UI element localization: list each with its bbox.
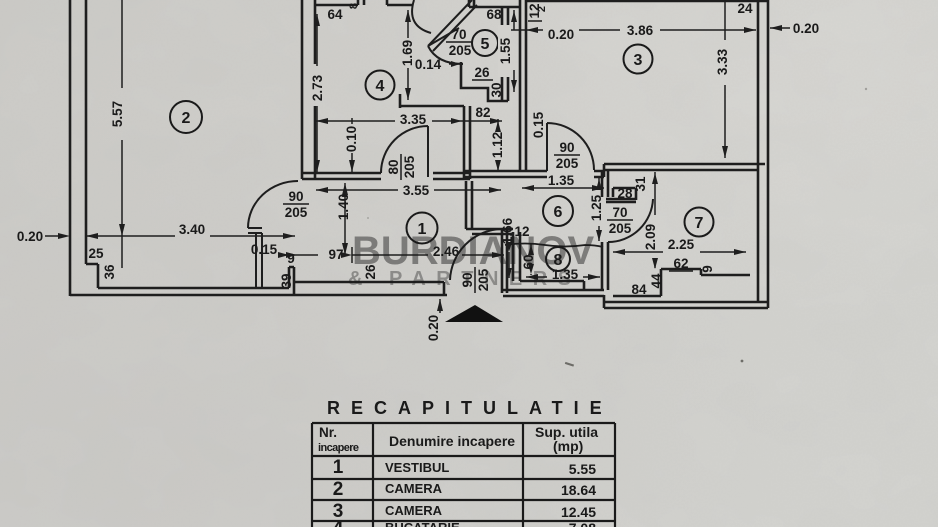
svg-text:3.55: 3.55 <box>403 183 430 198</box>
svg-text:(mp): (mp) <box>553 438 583 454</box>
svg-text:0.20: 0.20 <box>17 229 43 244</box>
svg-text:28: 28 <box>617 186 633 201</box>
svg-text:VESTIBUL: VESTIBUL <box>385 460 449 475</box>
svg-text:2: 2 <box>536 6 548 12</box>
svg-text:0.15: 0.15 <box>251 242 278 257</box>
svg-text:1: 1 <box>333 457 344 478</box>
svg-text:205: 205 <box>556 156 579 171</box>
svg-text:6: 6 <box>554 204 563 221</box>
svg-text:9: 9 <box>287 251 295 266</box>
svg-text:36: 36 <box>102 264 117 280</box>
svg-text:90: 90 <box>288 189 303 204</box>
svg-text:97: 97 <box>328 247 343 262</box>
svg-text:30: 30 <box>489 82 504 97</box>
svg-text:12.45: 12.45 <box>561 504 596 520</box>
svg-text:205: 205 <box>609 221 632 236</box>
svg-text:205: 205 <box>285 205 308 220</box>
svg-text:0.20: 0.20 <box>426 315 441 341</box>
svg-text:Denumire incapere: Denumire incapere <box>389 433 515 449</box>
svg-text:BURDIANOV: BURDIANOV <box>352 229 595 273</box>
svg-text:7.08: 7.08 <box>569 520 596 527</box>
svg-text:80: 80 <box>386 159 401 174</box>
svg-text:31: 31 <box>633 176 648 192</box>
svg-text:39: 39 <box>279 273 294 288</box>
svg-text:RECAPITULATIE: RECAPITULATIE <box>327 398 613 418</box>
svg-text:5: 5 <box>481 36 490 53</box>
svg-text:3: 3 <box>634 52 643 69</box>
svg-text:82: 82 <box>475 105 490 120</box>
svg-text:1.55: 1.55 <box>498 37 513 64</box>
svg-text:3.86: 3.86 <box>627 23 654 38</box>
svg-text:70: 70 <box>451 27 466 42</box>
svg-text:0.15: 0.15 <box>531 111 546 138</box>
svg-text:5.55: 5.55 <box>569 461 596 477</box>
svg-text:2.25: 2.25 <box>668 237 695 252</box>
svg-text:64: 64 <box>327 7 343 22</box>
svg-text:7: 7 <box>695 215 704 232</box>
svg-text:25: 25 <box>88 246 104 261</box>
svg-text:5.57: 5.57 <box>110 101 125 127</box>
svg-text:4: 4 <box>376 78 385 95</box>
svg-text:4: 4 <box>333 518 344 527</box>
svg-text:90: 90 <box>559 140 574 155</box>
svg-text:0.20: 0.20 <box>793 21 819 36</box>
svg-text:0.10: 0.10 <box>344 126 359 152</box>
svg-text:1.25: 1.25 <box>589 194 604 221</box>
svg-text:2: 2 <box>182 110 191 127</box>
svg-text:9: 9 <box>700 265 715 273</box>
svg-text:Nr.: Nr. <box>319 425 337 440</box>
svg-text:205: 205 <box>402 155 417 178</box>
svg-text:CAMERA: CAMERA <box>385 481 443 496</box>
svg-text:84: 84 <box>631 282 647 297</box>
svg-text:& PARTNERS: & PARTNERS <box>348 268 582 290</box>
svg-text:68: 68 <box>486 7 502 22</box>
svg-text:1.35: 1.35 <box>548 173 575 188</box>
svg-text:3.35: 3.35 <box>400 112 427 127</box>
svg-text:CAMERA: CAMERA <box>385 503 443 518</box>
svg-text:incapere: incapere <box>318 442 359 454</box>
svg-text:2.09: 2.09 <box>643 224 658 250</box>
svg-text:BUCATARIE: BUCATARIE <box>385 520 460 527</box>
svg-text:3.33: 3.33 <box>715 48 730 75</box>
svg-text:8: 8 <box>348 3 360 9</box>
svg-text:0.14: 0.14 <box>415 57 442 72</box>
svg-text:1.40: 1.40 <box>336 194 351 220</box>
svg-text:2.73: 2.73 <box>310 74 325 101</box>
svg-text:1.12: 1.12 <box>490 132 505 158</box>
svg-text:205: 205 <box>449 43 472 58</box>
svg-text:26: 26 <box>474 65 490 80</box>
svg-text:62: 62 <box>673 256 688 271</box>
svg-text:3.40: 3.40 <box>179 222 205 237</box>
svg-text:44: 44 <box>649 273 664 289</box>
svg-text:0.20: 0.20 <box>548 27 574 42</box>
svg-text:2: 2 <box>333 479 344 500</box>
svg-text:1.69: 1.69 <box>400 40 415 66</box>
svg-text:24: 24 <box>737 1 753 16</box>
svg-text:18.64: 18.64 <box>561 482 596 498</box>
svg-text:70: 70 <box>612 205 627 220</box>
